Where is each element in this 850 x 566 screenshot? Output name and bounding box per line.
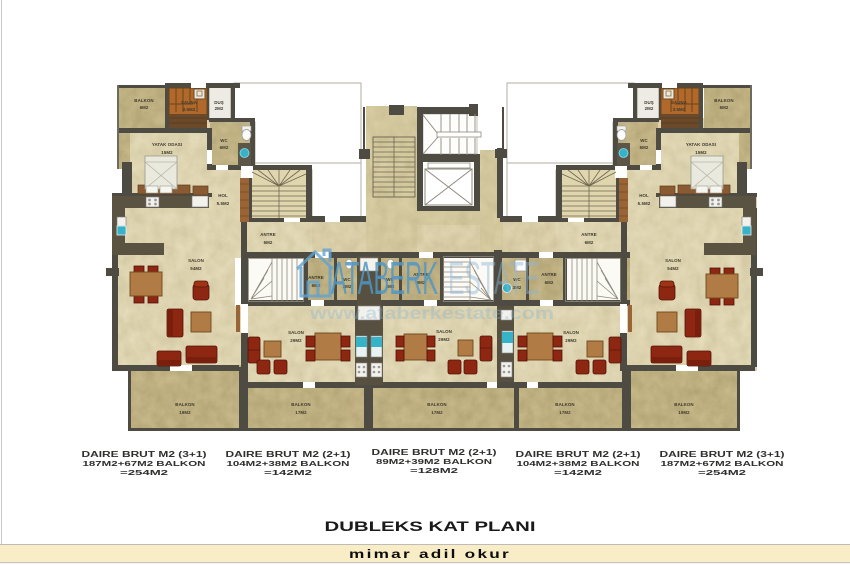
svg-text:WC: WC xyxy=(640,138,648,143)
svg-text:6M2: 6M2 xyxy=(640,145,649,150)
svg-text:6M2: 6M2 xyxy=(220,145,229,150)
svg-text:DAIRE BRUT M2 (3+1): DAIRE BRUT M2 (3+1) xyxy=(660,450,785,459)
svg-text:DUBLEKS KAT PLANI: DUBLEKS KAT PLANI xyxy=(325,518,536,534)
svg-text:ANTRE: ANTRE xyxy=(581,232,597,237)
svg-text:=142M2: =142M2 xyxy=(264,468,312,477)
svg-text:mimar adil okur: mimar adil okur xyxy=(349,549,511,561)
svg-text:DAIRE BRUT M2 (3+1): DAIRE BRUT M2 (3+1) xyxy=(82,450,207,459)
svg-text:6M2: 6M2 xyxy=(545,280,554,285)
svg-text:ANTRE: ANTRE xyxy=(308,275,324,280)
svg-text:15M2: 15M2 xyxy=(695,150,707,155)
svg-text:=128M2: =128M2 xyxy=(410,466,458,475)
svg-text:SALON: SALON xyxy=(188,258,204,263)
svg-text:DAIRE BRUT M2 (2+1): DAIRE BRUT M2 (2+1) xyxy=(226,450,351,459)
svg-text:29M2: 29M2 xyxy=(438,337,450,342)
svg-text:SALON: SALON xyxy=(288,330,304,335)
svg-text:3.5M2: 3.5M2 xyxy=(673,107,686,112)
svg-text:=142M2: =142M2 xyxy=(554,468,602,477)
svg-text:17M2: 17M2 xyxy=(431,410,443,415)
svg-text:WC: WC xyxy=(220,138,228,143)
svg-text:6M2: 6M2 xyxy=(585,240,594,245)
svg-text:SALON: SALON xyxy=(436,329,452,334)
svg-text:ESTATE: ESTATE xyxy=(448,252,540,304)
svg-text:6M2: 6M2 xyxy=(720,105,729,110)
svg-text:5.5M2: 5.5M2 xyxy=(217,201,230,206)
svg-text:2M2: 2M2 xyxy=(645,106,654,111)
svg-text:89M2+39M2 BALKON: 89M2+39M2 BALKON xyxy=(376,457,492,466)
svg-text:29M2: 29M2 xyxy=(290,338,302,343)
svg-text:DAIRE BRUT M2 (2+1): DAIRE BRUT M2 (2+1) xyxy=(516,450,641,459)
svg-text:15M2: 15M2 xyxy=(161,150,173,155)
svg-text:=254M2: =254M2 xyxy=(120,468,168,477)
svg-text:SALON: SALON xyxy=(563,330,579,335)
svg-text:ANTRE: ANTRE xyxy=(260,232,276,237)
svg-text:54M2: 54M2 xyxy=(667,266,679,271)
svg-text:104M2+38M2 BALKON: 104M2+38M2 BALKON xyxy=(517,459,640,468)
svg-text:6M2: 6M2 xyxy=(140,105,149,110)
svg-text:BALKON: BALKON xyxy=(674,402,693,407)
svg-text:2M2: 2M2 xyxy=(215,106,224,111)
svg-text:www.ataberkestate.com: www.ataberkestate.com xyxy=(309,303,554,323)
svg-text:HOL: HOL xyxy=(639,193,649,198)
svg-text:54M2: 54M2 xyxy=(190,266,202,271)
svg-text:SALON: SALON xyxy=(665,258,681,263)
svg-text:29M2: 29M2 xyxy=(565,338,577,343)
svg-text:17M2: 17M2 xyxy=(559,410,571,415)
svg-text:YATAK ODASI: YATAK ODASI xyxy=(152,142,182,147)
svg-text:DUŞ: DUŞ xyxy=(214,100,224,105)
svg-text:6M2: 6M2 xyxy=(264,240,273,245)
svg-text:104M2+38M2 BALKON: 104M2+38M2 BALKON xyxy=(227,459,350,468)
svg-text:19M2: 19M2 xyxy=(179,410,191,415)
svg-text:3.5M2: 3.5M2 xyxy=(183,107,196,112)
svg-text:BALKON: BALKON xyxy=(291,402,310,407)
svg-text:BALKON: BALKON xyxy=(134,98,153,103)
svg-text:5.5M2: 5.5M2 xyxy=(638,201,651,206)
svg-text:BALKON: BALKON xyxy=(555,402,574,407)
svg-text:YATAK ODASI: YATAK ODASI xyxy=(686,142,716,147)
svg-text:19M2: 19M2 xyxy=(678,410,690,415)
svg-text:ATABERK: ATABERK xyxy=(331,252,438,304)
svg-text:SAUNA: SAUNA xyxy=(181,100,198,105)
svg-text:17M2: 17M2 xyxy=(295,410,307,415)
svg-text:187M2+67M2 BALKON: 187M2+67M2 BALKON xyxy=(661,459,784,468)
svg-text:BALKON: BALKON xyxy=(714,98,733,103)
svg-text:ANTRE: ANTRE xyxy=(541,272,557,277)
svg-text:HOL: HOL xyxy=(218,193,228,198)
svg-text:DUŞ: DUŞ xyxy=(644,100,654,105)
svg-text:SAUNA: SAUNA xyxy=(671,100,688,105)
svg-text:=254M2: =254M2 xyxy=(698,468,746,477)
svg-text:BALKON: BALKON xyxy=(427,402,446,407)
svg-text:DAIRE BRUT M2 (2+1): DAIRE BRUT M2 (2+1) xyxy=(372,448,497,457)
svg-text:BALKON: BALKON xyxy=(175,402,194,407)
svg-text:187M2+67M2 BALKON: 187M2+67M2 BALKON xyxy=(83,459,206,468)
